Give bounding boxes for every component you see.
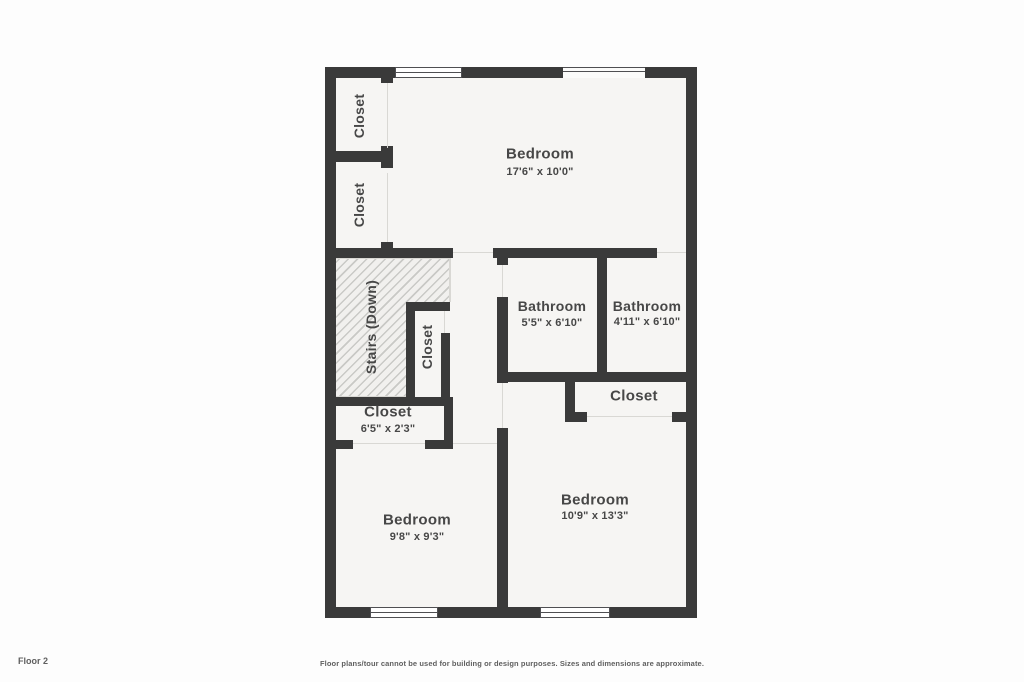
window	[563, 67, 645, 78]
wall	[381, 67, 393, 83]
wall	[686, 67, 697, 618]
room-label-stairs: Stairs (Down)	[363, 280, 379, 374]
floor-plan: Bedroom 17'6" x 10'0" Closet Closet Stai…	[0, 0, 1024, 682]
wall	[425, 440, 453, 449]
room-label-bathroom-2: Bathroom	[613, 298, 682, 314]
disclaimer-text: Floor plans/tour cannot be used for buil…	[320, 659, 704, 668]
wall	[497, 248, 508, 265]
wall	[325, 248, 453, 258]
door-opening	[444, 311, 445, 333]
wall	[381, 146, 393, 168]
wall	[497, 297, 508, 383]
door-opening	[587, 416, 672, 417]
door-opening	[453, 443, 497, 444]
room-label-bedroom-left: Bedroom	[383, 512, 451, 529]
door-opening	[450, 258, 451, 302]
wall	[462, 67, 563, 78]
floor-plan-page: Bedroom 17'6" x 10'0" Closet Closet Stai…	[0, 0, 1024, 682]
wall	[565, 412, 587, 422]
wall	[441, 333, 450, 397]
window	[540, 607, 610, 618]
wall	[493, 248, 657, 258]
door-opening	[353, 443, 425, 444]
window	[395, 67, 462, 78]
room-dims-bathroom-2: 4'11" x 6'10"	[614, 316, 681, 328]
wall	[610, 607, 697, 618]
room-label-closet-hall: Closet	[364, 404, 412, 421]
room-label-bedroom-right: Bedroom	[561, 492, 629, 509]
room-label-closet-top-1: Closet	[351, 94, 367, 139]
room-label-closet-bath: Closet	[610, 388, 658, 405]
wall	[325, 440, 353, 449]
wall	[497, 372, 697, 382]
floor-label: Floor 2	[18, 656, 48, 666]
room-label-bedroom-top: Bedroom	[506, 146, 574, 163]
wall	[597, 248, 607, 382]
room-dims-bedroom-right: 10'9" x 13'3"	[561, 510, 628, 522]
wall	[325, 151, 387, 162]
door-opening	[657, 252, 686, 253]
door-opening	[453, 252, 493, 253]
wall	[672, 412, 697, 422]
room-dims-closet-hall: 6'5" x 2'3"	[361, 423, 416, 435]
wall	[438, 607, 540, 618]
wall	[497, 428, 508, 618]
door-opening	[502, 265, 503, 297]
room-dims-bathroom-1: 5'5" x 6'10"	[522, 317, 583, 329]
window	[370, 607, 438, 618]
room-dims-bedroom-top: 17'6" x 10'0"	[506, 166, 573, 178]
room-label-bathroom-1: Bathroom	[518, 298, 587, 314]
door-opening	[387, 173, 388, 242]
door-opening	[502, 383, 503, 428]
door-opening	[387, 83, 388, 148]
room-dims-bedroom-left: 9'8" x 9'3"	[390, 531, 445, 543]
room-label-closet-top-2: Closet	[351, 183, 367, 228]
wall	[325, 67, 336, 618]
wall	[406, 302, 415, 397]
room-label-closet-stairs: Closet	[419, 325, 435, 370]
